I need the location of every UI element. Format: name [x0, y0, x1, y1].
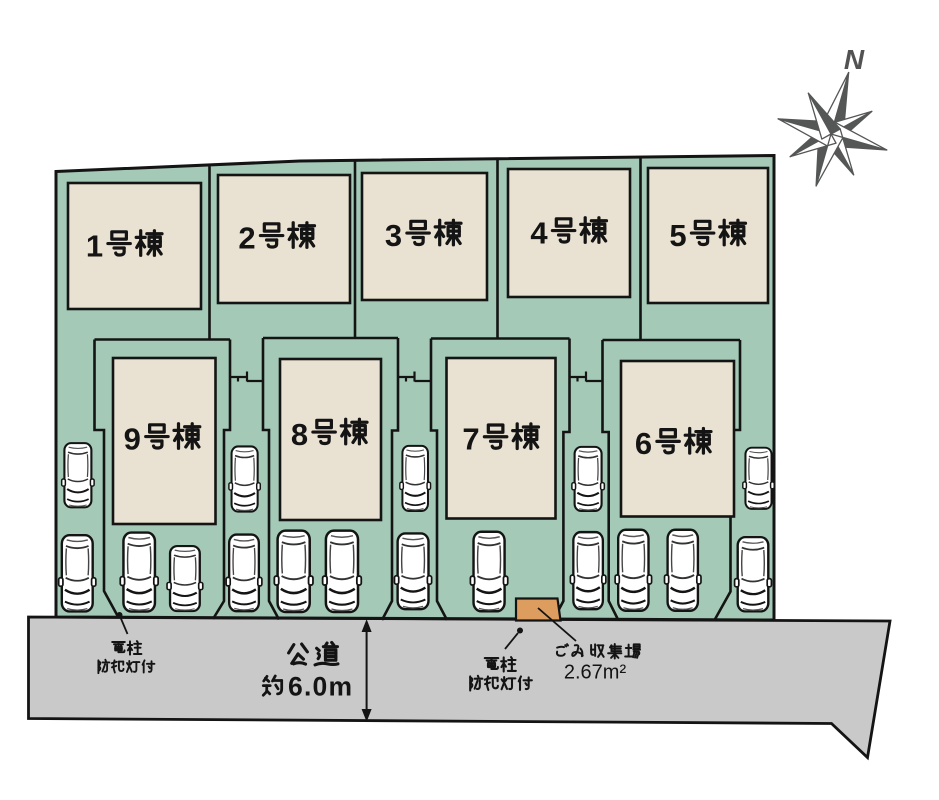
svg-text:8: 8	[291, 417, 308, 452]
svg-text:5: 5	[669, 218, 686, 253]
svg-text:1: 1	[86, 228, 103, 263]
svg-text:2: 2	[238, 220, 255, 255]
svg-text:N: N	[844, 44, 865, 75]
svg-text:9: 9	[124, 421, 141, 456]
svg-text:3: 3	[385, 218, 402, 253]
svg-text:2.67m²: 2.67m²	[564, 662, 627, 684]
svg-text:4: 4	[530, 215, 548, 250]
svg-text:6: 6	[635, 426, 652, 461]
svg-text:6.0m: 6.0m	[288, 672, 353, 702]
svg-text:7: 7	[462, 422, 479, 457]
